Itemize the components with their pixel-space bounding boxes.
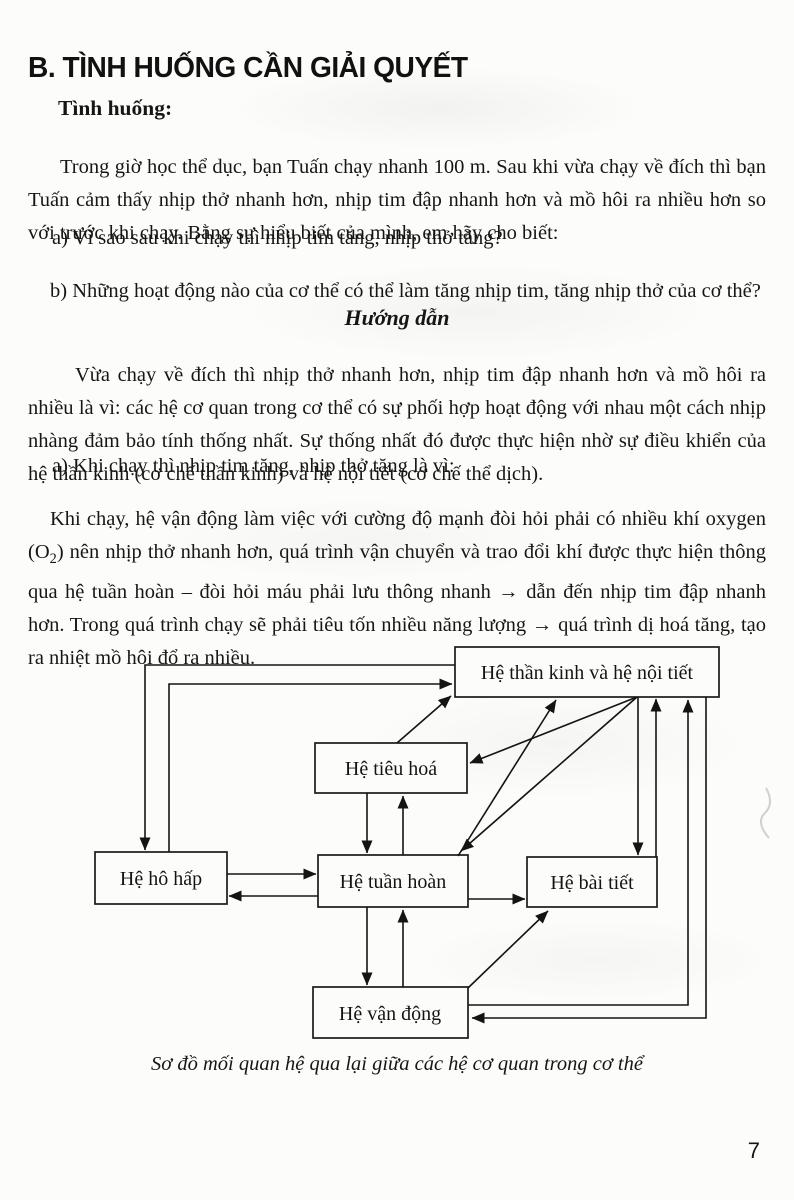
question-b: b) Những hoạt động nào của cơ thể có thể… [28, 275, 766, 308]
situation-label: Tình huống: [58, 96, 172, 121]
label-excretory: Hệ bài tiết [550, 872, 634, 894]
label-respiratory: Hệ hô hấp [120, 868, 202, 890]
question-a: a) Vì sao sau khi chạy thì nhịp tim tăng… [52, 222, 503, 255]
arrow-nervous-to-circulatory [461, 697, 637, 851]
organ-systems-diagram: Hệ thần kinh và hệ nội tiết Hệ tiêu hoá … [0, 645, 794, 1045]
pencil-scribble-artifact [761, 788, 770, 838]
guide-title: Hướng dẫn [0, 305, 794, 331]
label-circulatory: Hệ tuần hoàn [340, 871, 447, 893]
arrow-musculoskeletal-to-excretory [468, 911, 548, 988]
arrow-nervous-to-digestive [470, 697, 637, 763]
arrow-musculoskeletal-to-nervous [468, 700, 688, 1005]
answer-a-heading: a) Khi chạy thì nhịp tim tăng, nhịp thở … [52, 450, 455, 483]
arrow-digestive-to-nervous [397, 696, 451, 743]
label-nervous-endocrine: Hệ thần kinh và hệ nội tiết [481, 662, 694, 684]
oxygen-subscript: 2 [50, 551, 57, 567]
section-heading: B. TÌNH HUỐNG CẦN GIẢI QUYẾT [28, 52, 468, 85]
page-number: 7 [720, 1138, 760, 1164]
diagram-caption: Sơ đồ mối quan hệ qua lại giữa các hệ cơ… [0, 1053, 794, 1076]
scanned-book-page: B. TÌNH HUỐNG CẦN GIẢI QUYẾT Tình huống:… [0, 0, 794, 1200]
label-musculoskeletal: Hệ vận động [339, 1003, 441, 1025]
arrow-circulatory-to-nervous [458, 700, 556, 856]
label-digestive: Hệ tiêu hoá [345, 758, 437, 780]
